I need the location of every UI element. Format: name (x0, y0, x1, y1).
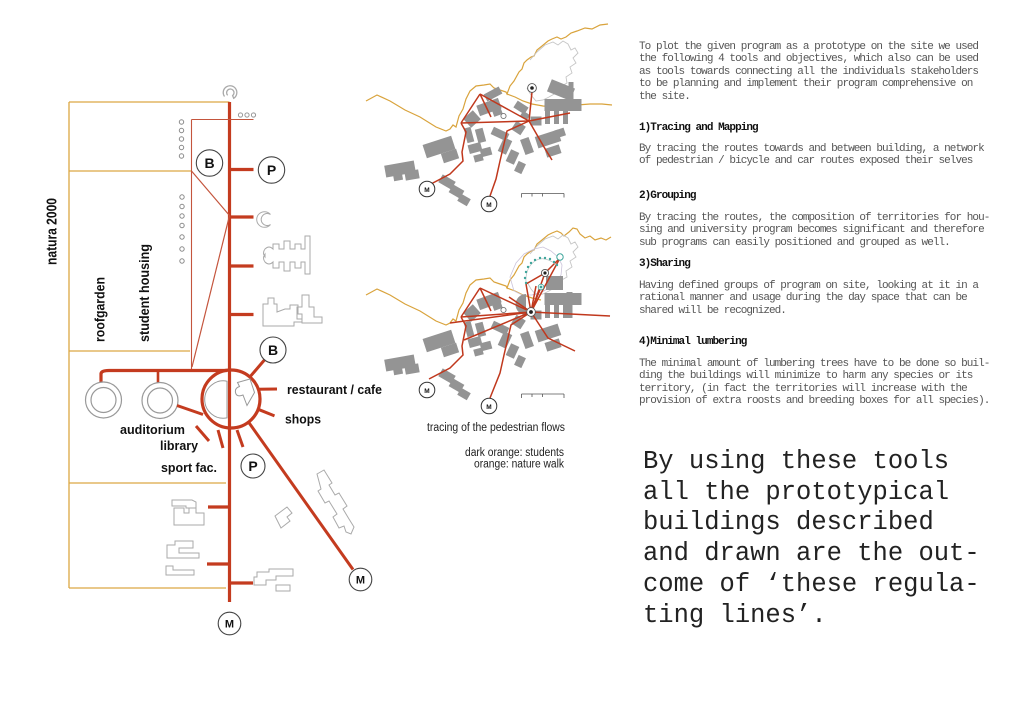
svg-text:restaurant / cafe: restaurant / cafe (287, 382, 382, 397)
svg-text:shops: shops (285, 412, 321, 427)
svg-text:M: M (225, 619, 234, 631)
svg-text:tracing of the pedestrian flow: tracing of the pedestrian flows (427, 422, 565, 434)
svg-text:P: P (248, 458, 257, 474)
svg-text:B: B (204, 155, 214, 171)
svg-text:roofgarden: roofgarden (92, 277, 108, 342)
svg-text:natura 2000: natura 2000 (44, 198, 61, 265)
svg-text:sport fac.: sport fac. (161, 460, 217, 475)
svg-text:B: B (268, 342, 278, 358)
svg-text:student housing: student housing (136, 244, 152, 342)
svg-text:dark orange: students: dark orange: students (465, 447, 564, 459)
svg-text:M: M (486, 202, 491, 209)
svg-text:M: M (424, 388, 429, 395)
svg-text:P: P (267, 162, 276, 178)
svg-text:M: M (486, 404, 491, 411)
svg-text:M: M (356, 575, 365, 587)
svg-text:M: M (424, 187, 429, 194)
svg-text:library: library (160, 438, 199, 453)
svg-text:orange: nature walk: orange: nature walk (474, 459, 564, 471)
svg-text:auditorium: auditorium (120, 422, 185, 437)
